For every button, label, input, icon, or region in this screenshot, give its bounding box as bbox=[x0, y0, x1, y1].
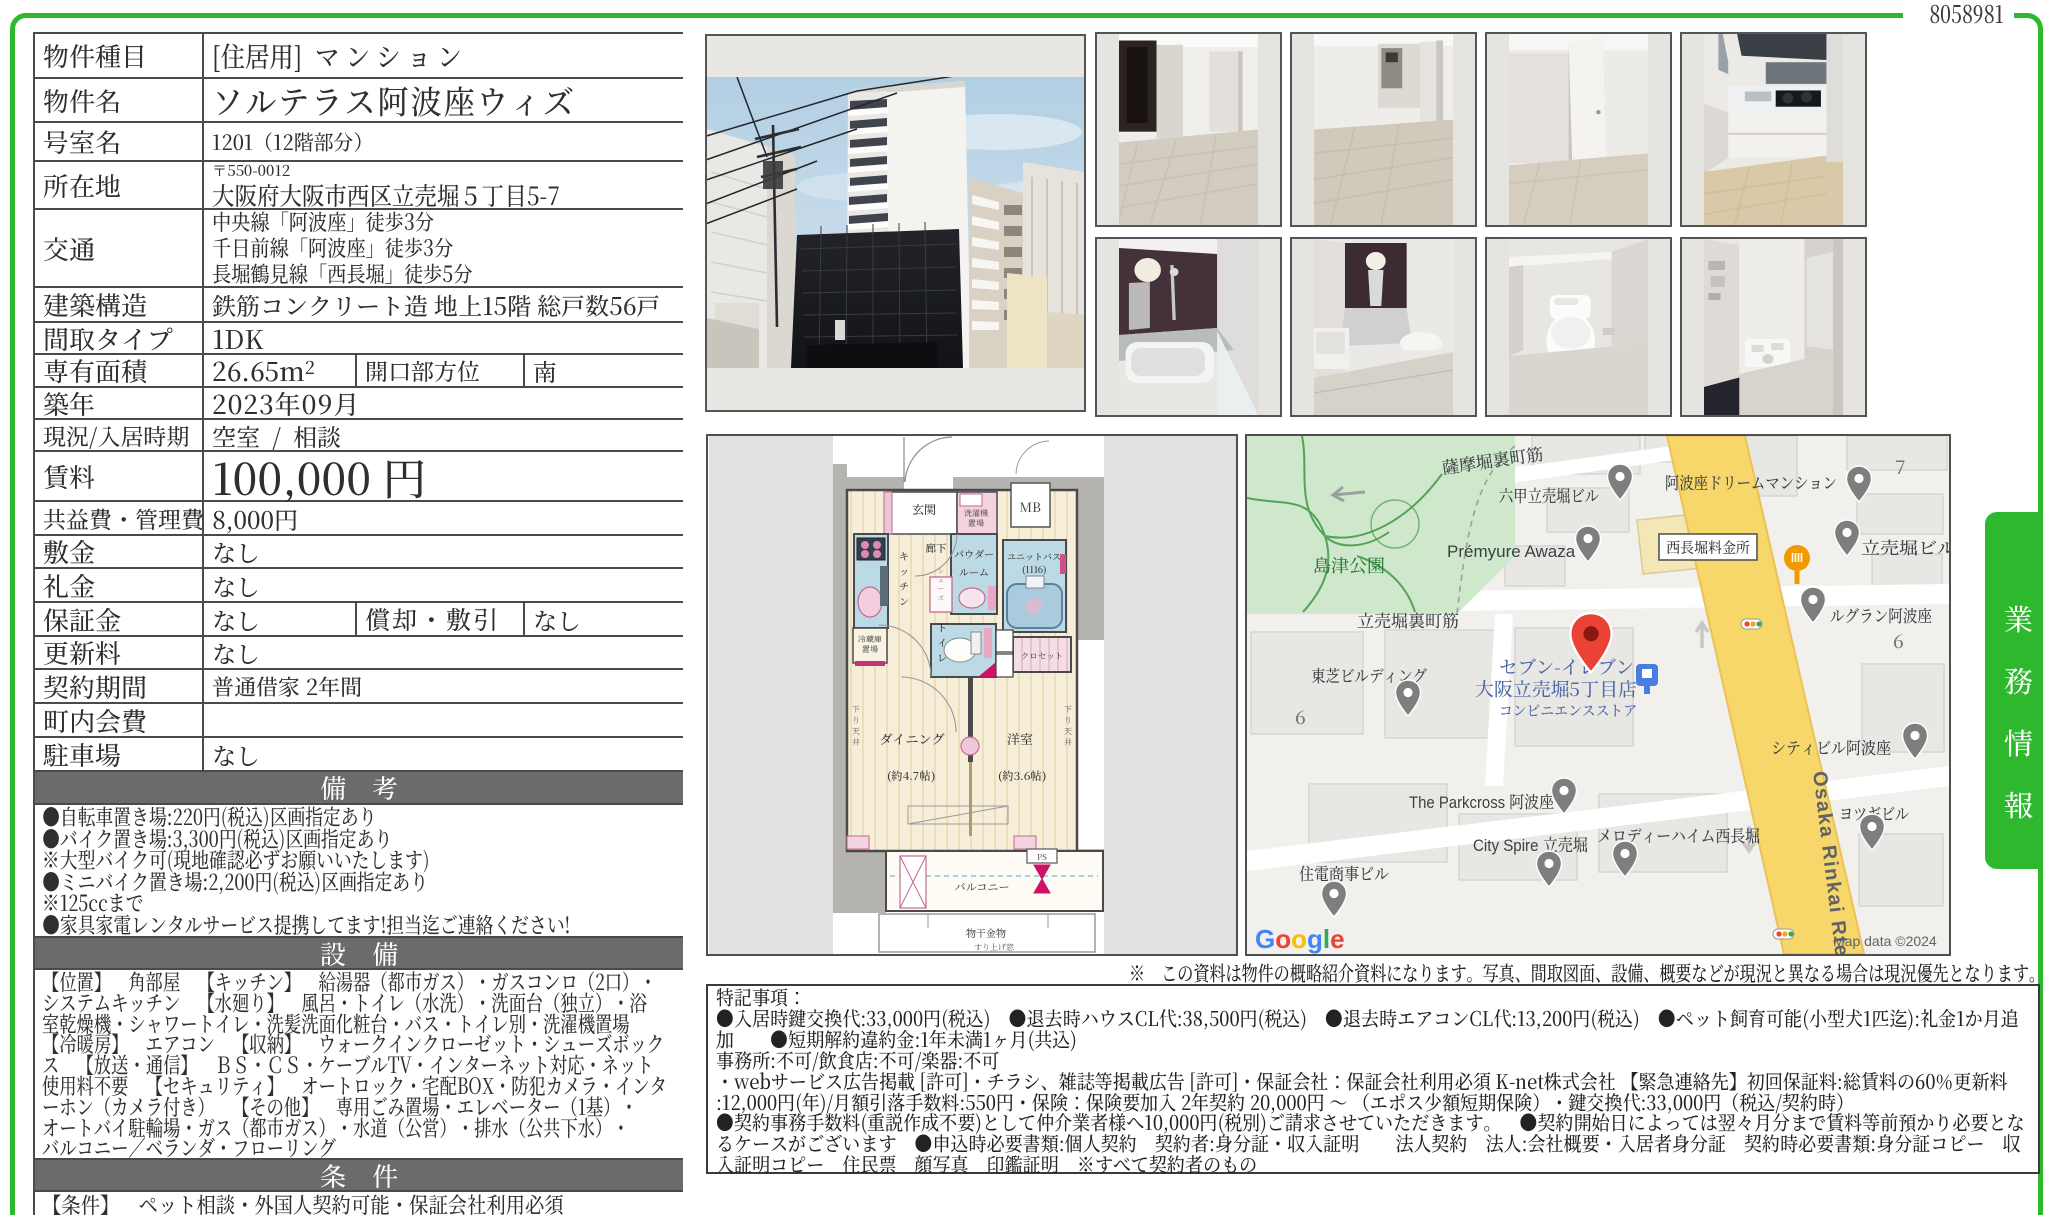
svg-text:コンビニエンスストア: コンビニエンスストア bbox=[1499, 700, 1637, 721]
svg-text:西長堀料金所: 西長堀料金所 bbox=[1666, 537, 1750, 558]
svg-text:パウダー: パウダー bbox=[954, 546, 994, 561]
svg-text:立売堀ビル: 立売堀ビル bbox=[1861, 534, 1949, 559]
svg-text:シティビル阿波座: シティビル阿波座 bbox=[1771, 734, 1891, 759]
svg-text:Google: Google bbox=[1255, 924, 1345, 954]
svg-text:シューズ: シューズ bbox=[937, 566, 946, 602]
svg-text:(1116): (1116) bbox=[1022, 563, 1046, 576]
svg-text:ダイニング: ダイニング bbox=[879, 729, 944, 748]
svg-text:すり上げ窓: すり上げ窓 bbox=[974, 942, 1014, 953]
svg-text:クロセット: クロセット bbox=[1021, 650, 1064, 662]
svg-text:MB: MB bbox=[1019, 497, 1041, 516]
svg-text:PS: PS bbox=[1037, 852, 1047, 863]
svg-text:置場: 置場 bbox=[968, 518, 984, 529]
svg-text:下り天井: 下り天井 bbox=[851, 704, 862, 748]
svg-text:7: 7 bbox=[1895, 453, 1906, 480]
svg-text:阿波座ドリームマンション: 阿波座ドリームマンション bbox=[1665, 469, 1837, 494]
svg-text:ユニットバス: ユニットバス bbox=[1007, 550, 1061, 563]
svg-text:島津公園: 島津公園 bbox=[1313, 552, 1385, 578]
svg-text:キッチン: キッチン bbox=[897, 548, 912, 608]
svg-text:玄関: 玄関 bbox=[912, 501, 936, 518]
svg-text:大阪立売堀5丁目店: 大阪立売堀5丁目店 bbox=[1475, 675, 1637, 702]
svg-text:ルグラン阿波座: ルグラン阿波座 bbox=[1830, 602, 1932, 627]
svg-text:6: 6 bbox=[1893, 627, 1904, 654]
svg-text:廊下: 廊下 bbox=[926, 541, 947, 556]
svg-text:ルーム: ルーム bbox=[959, 564, 989, 579]
svg-text:(約4.7帖): (約4.7帖) bbox=[887, 768, 935, 784]
svg-text:バルコニー: バルコニー bbox=[955, 879, 1010, 895]
svg-text:置場: 置場 bbox=[862, 644, 878, 655]
svg-text:六甲立売堀ビル: 六甲立売堀ビル bbox=[1499, 482, 1599, 507]
svg-text:Map data ©2024: Map data ©2024 bbox=[1833, 933, 1937, 949]
svg-text:6: 6 bbox=[1295, 703, 1306, 730]
svg-text:住電商事ビル: 住電商事ビル bbox=[1299, 860, 1389, 885]
svg-text:洋室: 洋室 bbox=[1007, 729, 1033, 748]
svg-text:下り天井: 下り天井 bbox=[1063, 704, 1074, 748]
svg-text:(約3.6帖): (約3.6帖) bbox=[998, 768, 1046, 784]
svg-text:Prémyure Awaza: Prémyure Awaza bbox=[1447, 542, 1576, 561]
svg-text:物干金物: 物干金物 bbox=[966, 925, 1006, 940]
svg-text:立売堀裏町筋: 立売堀裏町筋 bbox=[1357, 607, 1459, 632]
